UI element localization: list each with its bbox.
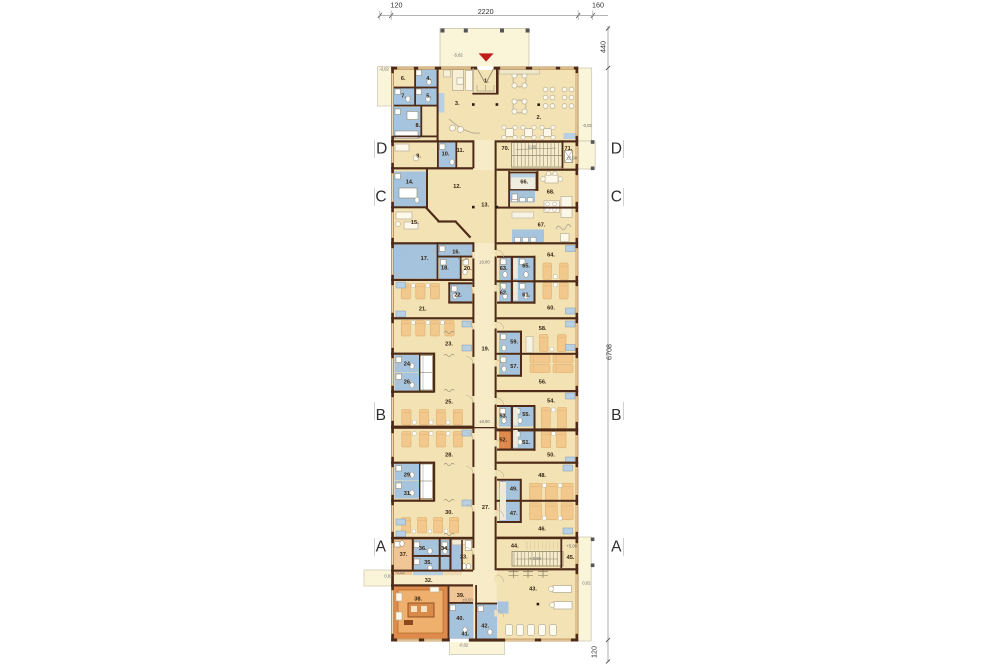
svg-text:52.: 52. xyxy=(499,438,507,444)
svg-text:31.: 31. xyxy=(404,491,412,497)
svg-text:64.: 64. xyxy=(547,252,555,258)
svg-text:23.: 23. xyxy=(445,342,453,348)
svg-text:C: C xyxy=(611,189,622,206)
svg-text:32.: 32. xyxy=(425,578,433,584)
svg-text:15.: 15. xyxy=(411,220,419,226)
svg-text:70.: 70. xyxy=(502,146,510,152)
svg-text:±0,00: ±0,00 xyxy=(462,598,473,603)
svg-text:50.: 50. xyxy=(547,452,555,458)
svg-text:63.: 63. xyxy=(500,266,508,272)
svg-text:0,00: 0,00 xyxy=(528,145,537,150)
svg-text:43.: 43. xyxy=(529,586,537,592)
svg-text:54.: 54. xyxy=(547,399,555,405)
svg-text:19.: 19. xyxy=(482,346,490,352)
svg-text:41.: 41. xyxy=(462,631,470,637)
svg-text:25.: 25. xyxy=(445,400,453,406)
svg-text:A: A xyxy=(611,539,622,556)
svg-text:48.: 48. xyxy=(538,473,546,479)
svg-text:18.: 18. xyxy=(441,265,449,271)
svg-text:±0,00: ±0,00 xyxy=(479,419,490,424)
svg-text:120: 120 xyxy=(391,1,403,10)
svg-text:-0,02: -0,02 xyxy=(395,570,405,575)
svg-text:-5,82: -5,82 xyxy=(453,53,463,58)
svg-text:46.: 46. xyxy=(538,527,546,533)
svg-text:67.: 67. xyxy=(538,222,546,228)
svg-text:12.: 12. xyxy=(453,184,461,190)
svg-text:68.: 68. xyxy=(547,190,555,196)
svg-text:51.: 51. xyxy=(522,440,530,446)
svg-text:49.: 49. xyxy=(510,487,518,493)
svg-text:36.: 36. xyxy=(419,546,427,552)
svg-text:16.: 16. xyxy=(452,249,460,255)
svg-text:60.: 60. xyxy=(547,305,555,311)
svg-text:34.: 34. xyxy=(441,546,449,552)
svg-text:59.: 59. xyxy=(510,340,518,346)
svg-text:4.: 4. xyxy=(426,76,431,82)
svg-text:62.: 62. xyxy=(500,291,508,297)
svg-text:120: 120 xyxy=(590,646,599,658)
svg-text:61.: 61. xyxy=(522,292,530,298)
svg-text:B: B xyxy=(611,407,621,424)
svg-text:9.: 9. xyxy=(416,154,421,160)
svg-text:58.: 58. xyxy=(539,326,547,332)
svg-text:2220: 2220 xyxy=(478,7,494,16)
svg-text:-0,02: -0,02 xyxy=(582,123,592,128)
svg-text:22.: 22. xyxy=(454,292,462,298)
svg-text:160: 160 xyxy=(592,1,604,10)
svg-text:40.: 40. xyxy=(456,616,464,622)
svg-text:D: D xyxy=(376,141,387,158)
svg-text:0,02: 0,02 xyxy=(384,573,393,578)
svg-text:10.: 10. xyxy=(442,152,450,158)
svg-text:A: A xyxy=(376,539,387,556)
svg-text:35.: 35. xyxy=(424,560,432,566)
svg-text:47.: 47. xyxy=(510,511,518,517)
svg-text:30.: 30. xyxy=(445,510,453,516)
svg-text:56.: 56. xyxy=(539,380,547,386)
svg-text:42.: 42. xyxy=(481,624,489,630)
svg-text:0,02: 0,02 xyxy=(582,580,591,585)
svg-text:6.: 6. xyxy=(401,76,406,82)
svg-text:+5,00: +5,00 xyxy=(566,544,577,549)
svg-text:8.: 8. xyxy=(415,123,420,129)
svg-text:3.: 3. xyxy=(455,101,460,107)
svg-text:24.: 24. xyxy=(404,362,412,368)
svg-text:17.: 17. xyxy=(421,256,429,262)
svg-text:14.: 14. xyxy=(406,180,414,186)
svg-text:±5,00: ±5,00 xyxy=(567,155,578,160)
svg-text:29.: 29. xyxy=(404,472,412,478)
svg-text:±0,00: ±0,00 xyxy=(479,260,490,265)
svg-text:440: 440 xyxy=(599,41,608,53)
svg-text:27.: 27. xyxy=(482,505,490,511)
svg-text:B: B xyxy=(376,407,386,424)
svg-text:1.: 1. xyxy=(484,79,489,85)
svg-text:6708: 6708 xyxy=(605,344,614,360)
svg-text:37.: 37. xyxy=(400,552,408,558)
svg-text:65.: 65. xyxy=(522,263,530,269)
svg-text:55.: 55. xyxy=(522,412,530,418)
svg-text:5.: 5. xyxy=(426,94,431,100)
svg-text:13.: 13. xyxy=(481,202,489,208)
svg-text:53.: 53. xyxy=(499,414,507,420)
svg-text:11.: 11. xyxy=(457,148,465,154)
svg-text:-0,02: -0,02 xyxy=(379,66,389,71)
svg-text:71.: 71. xyxy=(565,146,573,152)
svg-text:28.: 28. xyxy=(445,452,453,458)
svg-text:26.: 26. xyxy=(404,380,412,386)
svg-text:66.: 66. xyxy=(520,180,528,186)
svg-text:C: C xyxy=(375,189,386,206)
svg-text:33.: 33. xyxy=(460,555,468,561)
svg-text:38.: 38. xyxy=(414,596,422,602)
svg-text:57.: 57. xyxy=(510,364,518,370)
svg-text:45.: 45. xyxy=(567,555,575,561)
svg-text:D: D xyxy=(611,141,622,158)
svg-text:20.: 20. xyxy=(464,266,472,272)
svg-text:2.: 2. xyxy=(536,115,541,121)
svg-text:44.: 44. xyxy=(511,544,519,550)
svg-text:+ 0,90: + 0,90 xyxy=(529,556,541,561)
svg-text:21.: 21. xyxy=(419,307,427,313)
svg-text:-0,02: -0,02 xyxy=(459,642,469,647)
svg-text:7.: 7. xyxy=(401,94,406,100)
